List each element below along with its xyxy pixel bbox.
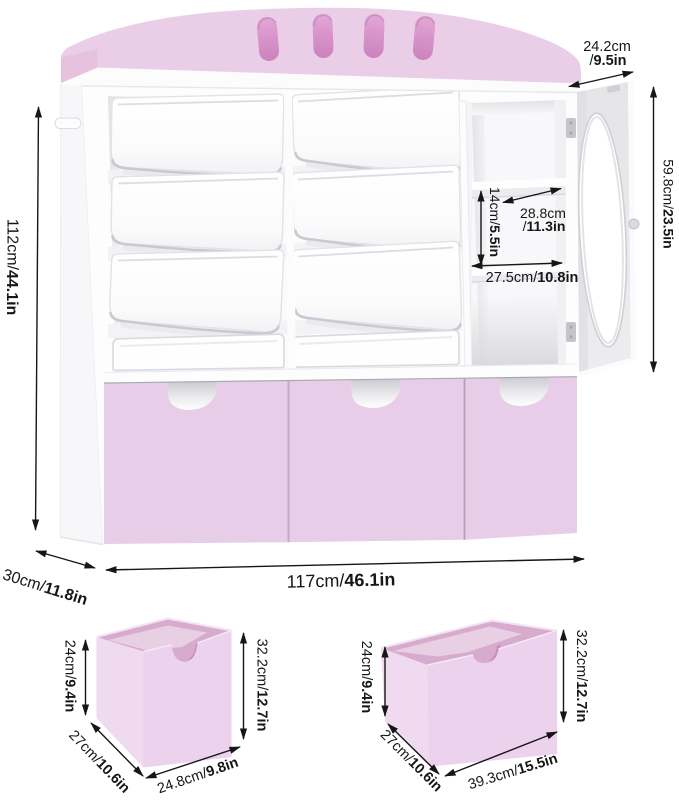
svg-text:24cm/9.4in: 24cm/9.4in [358,641,374,714]
svg-text:/9.5in: /9.5in [589,53,626,69]
svg-text:117cm/46.1in: 117cm/46.1in [286,569,395,591]
svg-text:32.2cm/12.7in: 32.2cm/12.7in [573,630,589,723]
svg-text:27.5cm/10.8in: 27.5cm/10.8in [486,270,579,286]
svg-text:24cm/9.4in: 24cm/9.4in [62,640,78,713]
svg-text:59.8cm/23.5in: 59.8cm/23.5in [661,159,677,249]
svg-text:14cm/5.5in: 14cm/5.5in [487,187,503,257]
svg-text:32.2cm/12.7in: 32.2cm/12.7in [254,639,270,732]
svg-text:112cm/44.1in: 112cm/44.1in [4,219,21,316]
svg-text:/11.3in: /11.3in [523,218,566,234]
